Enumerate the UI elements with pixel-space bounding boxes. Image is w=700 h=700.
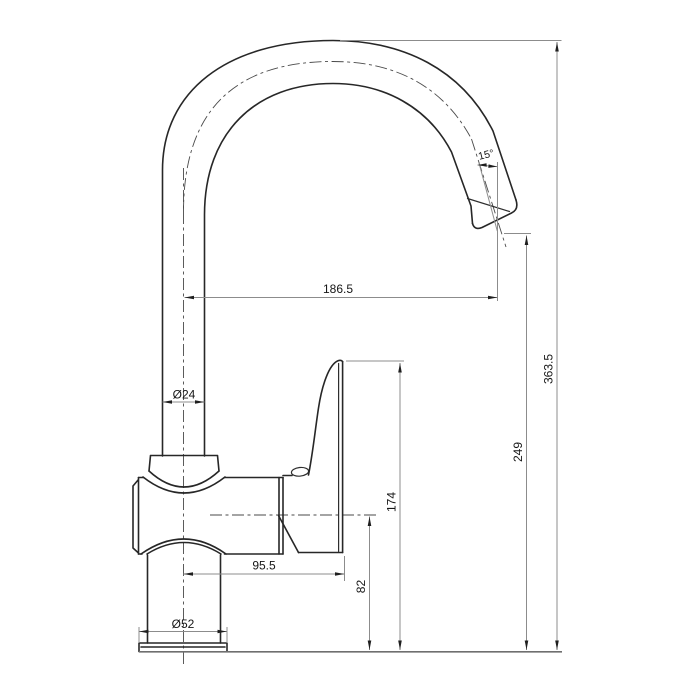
arrow-handle-top-height-top xyxy=(398,363,402,373)
arrow-spout-reach-left xyxy=(185,296,195,300)
spout-outer-profile xyxy=(163,41,517,457)
arrow-spout-reach-right xyxy=(488,296,498,300)
ext-spout-angle-slant xyxy=(479,163,497,231)
escutcheon-lower-slant xyxy=(279,516,299,553)
arrow-base-diameter-right xyxy=(218,630,228,634)
dim-label-spout-reach: 186.5 xyxy=(323,282,353,296)
drawing-canvas: 186.5 363.5 249 174 82 95.5 Ø24 Ø52 15° xyxy=(0,0,700,700)
arrow-overall-height-bottom xyxy=(555,641,559,651)
arrow-column-diameter-left xyxy=(163,400,173,404)
dim-label-overall-height: 363.5 xyxy=(542,354,556,384)
base-flange xyxy=(139,643,227,652)
arrow-center-to-handle-right xyxy=(335,572,345,576)
dim-label-body-center-height: 82 xyxy=(354,580,368,594)
arrow-column-diameter-right xyxy=(195,400,205,404)
column-collar xyxy=(149,456,219,472)
dim-label-spout-angle: 15° xyxy=(477,147,495,162)
dimension-arrowheads xyxy=(139,42,559,650)
arrow-body-center-height-top xyxy=(368,517,372,527)
dim-label-outlet-height: 249 xyxy=(511,442,525,462)
body-left-end-cap xyxy=(133,478,139,555)
body-top-saddle-inner xyxy=(149,471,219,487)
extension-lines xyxy=(139,41,562,644)
faucet-outline xyxy=(133,41,562,652)
arrow-outlet-height-bottom xyxy=(525,641,529,651)
arrow-outlet-height-top xyxy=(525,236,529,246)
escutcheon-button xyxy=(291,467,309,477)
body-right-end-cap xyxy=(279,478,283,555)
arrow-body-center-height-bottom xyxy=(368,641,372,651)
dim-label-column-diameter: Ø24 xyxy=(173,388,196,402)
body-top-saddle-outer xyxy=(143,477,225,493)
spout-tip-outline xyxy=(473,200,517,228)
faucet-dimension-drawing: 186.5 363.5 249 174 82 95.5 Ø24 Ø52 15° xyxy=(0,0,700,700)
arrow-handle-top-height-bottom xyxy=(398,641,402,651)
spout-aerator-line xyxy=(468,199,510,212)
arrow-overall-height-top xyxy=(555,42,559,52)
dim-label-base-diameter: Ø52 xyxy=(172,617,195,631)
dim-label-handle-top-height: 174 xyxy=(385,492,399,512)
dim-label-center-to-handle: 95.5 xyxy=(252,559,276,573)
handle-lever-front-curve xyxy=(309,360,343,475)
arrow-base-diameter-left xyxy=(139,630,149,634)
arrow-center-to-handle-left xyxy=(184,572,194,576)
